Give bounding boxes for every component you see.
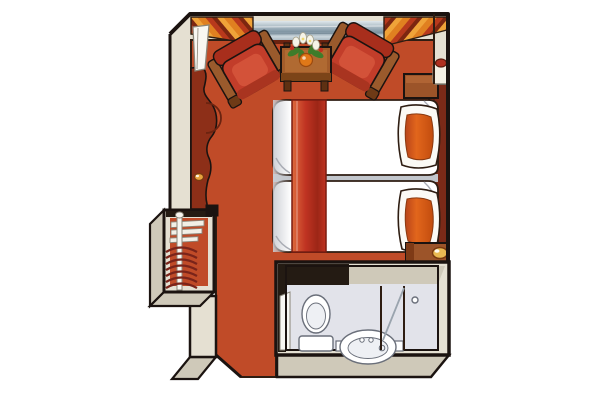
wardrobe xyxy=(150,205,218,306)
pillow-1 xyxy=(398,105,440,168)
floor-plan-canvas: Ship cabin floor plan xyxy=(0,0,600,400)
toilet xyxy=(299,295,333,351)
faucet-dot xyxy=(369,338,373,342)
wardrobe-wall-cap xyxy=(206,205,218,216)
tulip xyxy=(313,40,320,50)
bowl-highlight xyxy=(302,56,306,60)
cabin-floor-plan: Ship cabin floor plan xyxy=(0,0,600,400)
nightstand-top-face xyxy=(406,76,436,83)
red-flower xyxy=(319,48,323,52)
orange-bowl xyxy=(300,54,313,67)
red-flower xyxy=(290,46,294,50)
table-lamp-bottom xyxy=(433,248,448,259)
tulip-center xyxy=(302,38,305,41)
lamp-top-cap xyxy=(436,59,447,67)
rod-cap xyxy=(176,212,184,218)
twin-beds xyxy=(273,100,440,252)
bathroom-dark-wall xyxy=(278,264,349,285)
bathroom-door-knob xyxy=(412,297,418,303)
console-knob xyxy=(195,174,204,181)
tulip xyxy=(293,37,300,47)
table-leg-front-right xyxy=(321,81,328,91)
table-leg-front-left xyxy=(284,81,291,91)
bathroom-inner-wall-top xyxy=(349,266,445,284)
console-knob-highlight xyxy=(196,175,199,177)
lamp-bottom-highlight xyxy=(435,249,440,253)
wardrobe-top-wall xyxy=(166,211,212,217)
bathroom xyxy=(276,262,449,377)
table-front-edge xyxy=(281,73,331,81)
wardrobe-skirt-left xyxy=(150,210,164,306)
tulip-center xyxy=(309,40,312,43)
faucet-dot xyxy=(360,338,364,342)
